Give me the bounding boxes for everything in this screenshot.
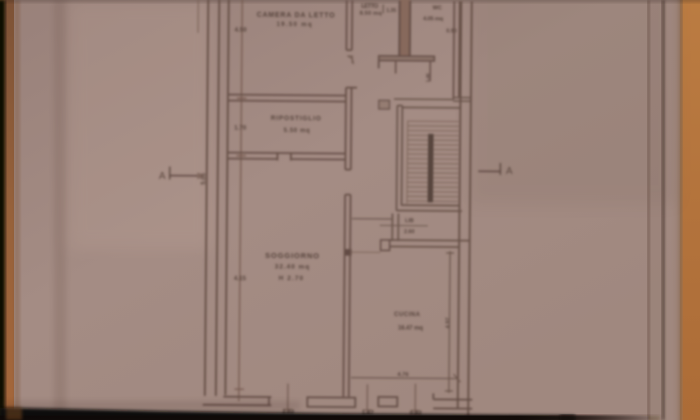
- svg-text:8.50 mq: 8.50 mq: [360, 11, 383, 17]
- svg-text:0.90: 0.90: [446, 28, 457, 34]
- svg-text:H 2.70: H 2.70: [279, 275, 304, 282]
- svg-text:LIB: LIB: [405, 218, 414, 224]
- svg-text:4.76: 4.76: [397, 372, 409, 378]
- svg-text:LETTO: LETTO: [361, 4, 378, 10]
- svg-text:4.15: 4.15: [234, 275, 247, 282]
- svg-text:5.05: 5.05: [201, 172, 207, 184]
- svg-text:16.47 mq: 16.47 mq: [398, 326, 423, 332]
- svg-text:4.97: 4.97: [445, 318, 451, 329]
- svg-text:32.40 mq: 32.40 mq: [275, 263, 310, 270]
- svg-text:CAMERA DA LETTO: CAMERA DA LETTO: [257, 12, 336, 20]
- svg-text:CUCINA: CUCINA: [394, 312, 421, 318]
- svg-text:2.60: 2.60: [404, 229, 415, 235]
- svg-text:SOGGIORNO: SOGGIORNO: [265, 251, 319, 260]
- svg-text:A: A: [159, 171, 166, 182]
- svg-text:A: A: [506, 166, 513, 177]
- svg-text:1.35: 1.35: [386, 8, 396, 14]
- svg-text:1.70: 1.70: [234, 125, 247, 132]
- svg-text:WC: WC: [433, 5, 442, 11]
- svg-text:1.40: 1.40: [425, 73, 430, 82]
- svg-text:RIPOSTIGLIO: RIPOSTIGLIO: [271, 115, 321, 122]
- svg-text:4.50: 4.50: [234, 27, 247, 34]
- svg-text:4.05 mq: 4.05 mq: [423, 16, 444, 22]
- svg-text:5.50 mq: 5.50 mq: [284, 128, 310, 134]
